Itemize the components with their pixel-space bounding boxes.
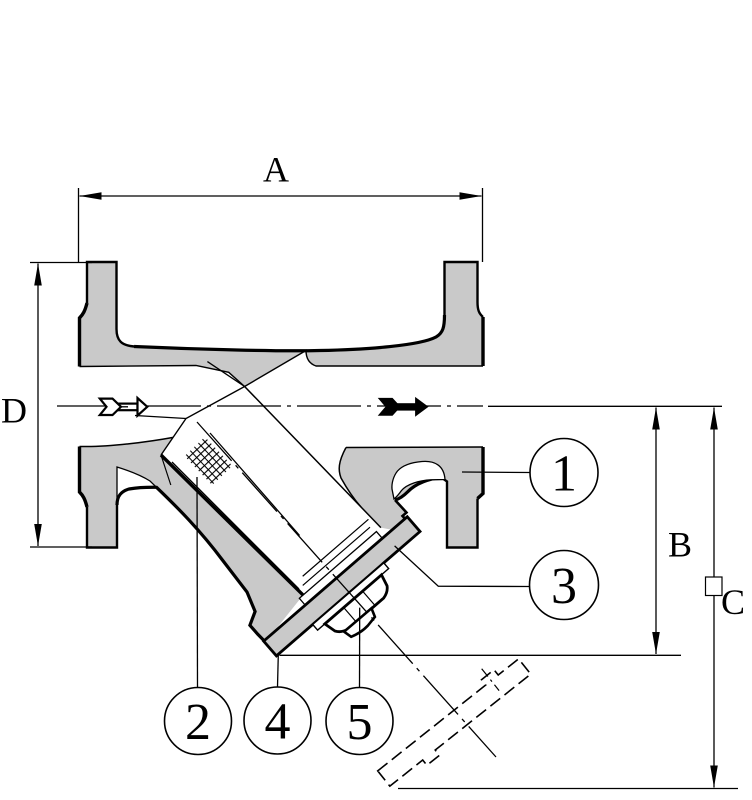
svg-text:1: 1 — [551, 446, 577, 503]
svg-text:5: 5 — [347, 694, 373, 751]
svg-text:C: C — [721, 582, 745, 622]
svg-text:4: 4 — [265, 694, 291, 751]
svg-text:3: 3 — [551, 558, 577, 615]
svg-text:B: B — [668, 525, 692, 565]
svg-text:2: 2 — [185, 694, 211, 751]
svg-text:D: D — [1, 391, 27, 431]
svg-text:A: A — [263, 150, 289, 190]
